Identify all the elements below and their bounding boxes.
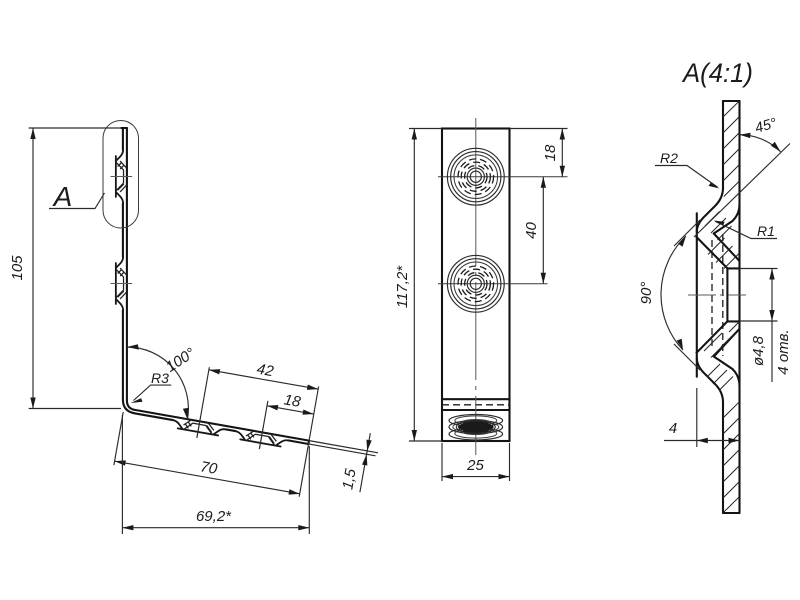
svg-text:69,2*: 69,2* [196,508,232,525]
svg-text:70: 70 [199,458,219,478]
svg-text:ø4,8: ø4,8 [750,335,767,366]
svg-text:105: 105 [9,255,26,281]
svg-text:R3: R3 [151,370,169,386]
svg-text:117,2*: 117,2* [394,265,411,308]
svg-text:18: 18 [542,144,559,161]
svg-text:4: 4 [669,420,677,437]
svg-text:R2: R2 [660,150,678,166]
svg-text:45°: 45° [753,115,779,136]
svg-text:1,5: 1,5 [339,467,359,491]
svg-text:4 отв.: 4 отв. [775,329,792,374]
svg-text:25: 25 [466,457,484,474]
svg-text:A: A [52,181,73,212]
svg-text:90°: 90° [638,282,655,305]
svg-text:40: 40 [523,222,540,239]
svg-text:18: 18 [283,391,303,411]
svg-text:A(4:1): A(4:1) [681,58,753,88]
svg-text:R1: R1 [757,223,775,239]
svg-text:42: 42 [255,361,275,381]
